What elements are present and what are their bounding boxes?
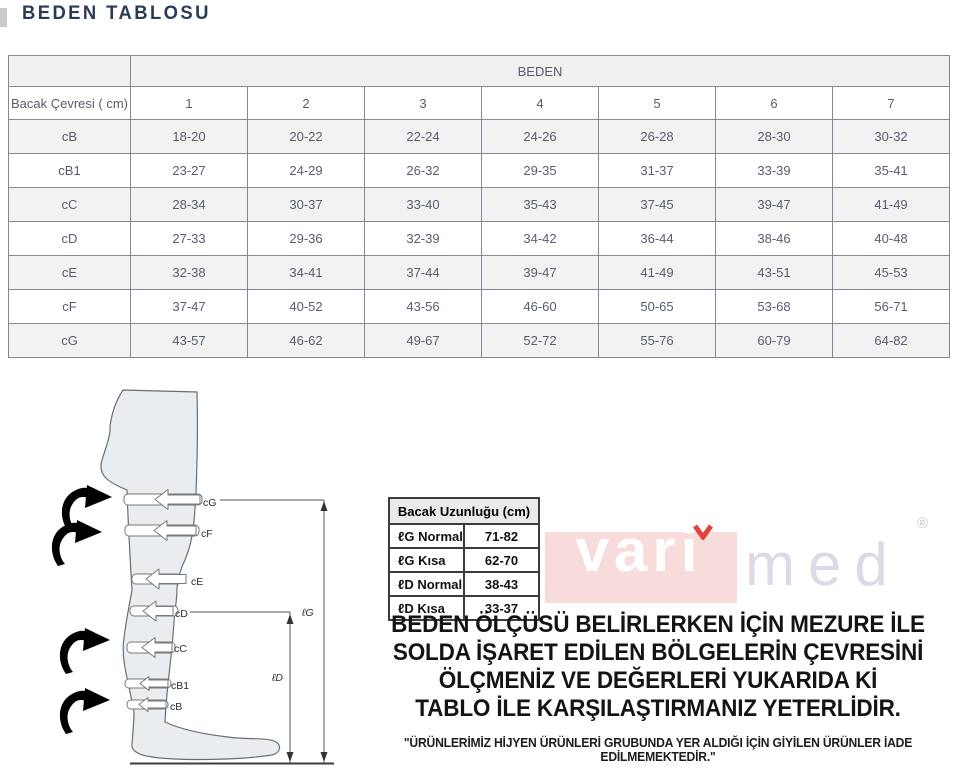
instruction-line: SOLDA İŞARET EDİLEN BÖLGELERİN ÇEVRESİNİ bbox=[364, 639, 953, 667]
size-value-cell: 38-46 bbox=[716, 222, 833, 256]
table-row: cF37-4740-5243-5646-6050-6553-6856-71 bbox=[9, 290, 950, 324]
arrow-down-icon bbox=[287, 752, 294, 762]
size-column-header: 2 bbox=[248, 87, 365, 120]
lg-label: ℓG bbox=[301, 607, 314, 619]
table-row: cE32-3834-4137-4439-4741-4943-5145-53 bbox=[9, 256, 950, 290]
curved-arrow-icon bbox=[60, 628, 110, 674]
size-number-header-row: Bacak Çevresi ( cm) 1234567 bbox=[9, 87, 950, 120]
size-value-cell: 26-28 bbox=[599, 120, 716, 154]
size-value-cell: 40-48 bbox=[833, 222, 950, 256]
size-value-cell: 20-22 bbox=[248, 120, 365, 154]
length-value: 71-82 bbox=[464, 524, 539, 548]
registered-trademark-icon: ® bbox=[917, 515, 928, 532]
size-value-cell: 35-41 bbox=[833, 154, 950, 188]
instruction-line: ÖLÇMENİZ VE DEĞERLERİ YUKARIDA Kİ bbox=[364, 667, 953, 695]
circumference-header: Bacak Çevresi ( cm) bbox=[9, 87, 131, 120]
row-label: cB1 bbox=[9, 154, 131, 188]
length-value: 38-43 bbox=[464, 572, 539, 596]
size-value-cell: 29-35 bbox=[482, 154, 599, 188]
brand-caron-icon bbox=[693, 524, 713, 540]
curved-arrow-icon bbox=[60, 688, 110, 734]
size-value-cell: 45-53 bbox=[833, 256, 950, 290]
length-label: ℓG Normal bbox=[389, 524, 464, 548]
hygiene-return-policy-note: "ÜRÜNLERİMİZ HİJYEN ÜRÜNLERİ GRUBUNDA YE… bbox=[348, 736, 958, 764]
length-value: 62-70 bbox=[464, 548, 539, 572]
size-value-cell: 24-26 bbox=[482, 120, 599, 154]
length-label: ℓG Kısa bbox=[389, 548, 464, 572]
size-value-cell: 36-44 bbox=[599, 222, 716, 256]
page-title: BEDEN TABLOSU bbox=[22, 3, 211, 25]
size-value-cell: 64-82 bbox=[833, 324, 950, 358]
row-label: cB bbox=[9, 120, 131, 154]
table-row: cG43-5746-6249-6752-7255-7660-7964-82 bbox=[9, 324, 950, 358]
table-row: cB123-2724-2926-3229-3531-3733-3935-41 bbox=[9, 154, 950, 188]
table-row: cC28-3430-3733-4035-4337-4539-4741-49 bbox=[9, 188, 950, 222]
size-value-cell: 43-56 bbox=[365, 290, 482, 324]
table-row: cB18-2020-2222-2424-2626-2828-3030-32 bbox=[9, 120, 950, 154]
size-chart-page: BEDEN TABLOSU BEDEN Bacak Çevresi ( cm) … bbox=[0, 0, 958, 779]
size-value-cell: 33-39 bbox=[716, 154, 833, 188]
curved-arrow-icon bbox=[52, 520, 102, 566]
measure-labels: ℓG ℓD bbox=[271, 607, 314, 684]
leg-measurement-diagram: cG cF cE cD cC cB1 cB ℓG ℓD bbox=[40, 382, 350, 779]
title-accent-bar bbox=[0, 8, 7, 27]
size-value-cell: 39-47 bbox=[482, 256, 599, 290]
size-value-cell: 33-40 bbox=[365, 188, 482, 222]
band-label-cG: cG bbox=[203, 497, 216, 509]
size-value-cell: 29-36 bbox=[248, 222, 365, 256]
size-value-cell: 23-27 bbox=[131, 154, 248, 188]
length-table-header: Bacak Uzunluğu (cm) bbox=[389, 498, 539, 524]
size-value-cell: 37-47 bbox=[131, 290, 248, 324]
size-value-cell: 41-49 bbox=[599, 256, 716, 290]
length-row: ℓD Normal38-43 bbox=[389, 572, 539, 596]
size-value-cell: 22-24 bbox=[365, 120, 482, 154]
leg-length-table: Bacak Uzunluğu (cm) ℓG Normal71-82ℓG Kıs… bbox=[388, 497, 540, 621]
size-column-header: 3 bbox=[365, 87, 482, 120]
row-label: cC bbox=[9, 188, 131, 222]
row-label: cD bbox=[9, 222, 131, 256]
ld-label: ℓD bbox=[271, 672, 283, 684]
instruction-line: BEDEN ÖLÇÜSÜ BELİRLERKEN İÇİN MEZURE İLE bbox=[364, 611, 953, 639]
row-label: cF bbox=[9, 290, 131, 324]
size-value-cell: 32-38 bbox=[131, 256, 248, 290]
size-value-cell: 43-57 bbox=[131, 324, 248, 358]
size-group-header: BEDEN bbox=[131, 56, 950, 87]
size-value-cell: 30-37 bbox=[248, 188, 365, 222]
size-value-cell: 40-52 bbox=[248, 290, 365, 324]
size-table: BEDEN Bacak Çevresi ( cm) 1234567 cB18-2… bbox=[8, 55, 950, 358]
length-label: ℓD Normal bbox=[389, 572, 464, 596]
table-row: cD27-3329-3632-3934-4236-4438-4640-48 bbox=[9, 222, 950, 256]
band-label-cF: cF bbox=[201, 528, 213, 540]
measurement-instructions: BEDEN ÖLÇÜSÜ BELİRLERKEN İÇİN MEZURE İLE… bbox=[364, 611, 953, 723]
band-label-cB: cB bbox=[170, 701, 182, 713]
size-value-cell: 43-51 bbox=[716, 256, 833, 290]
size-value-cell: 41-49 bbox=[833, 188, 950, 222]
arrow-up-icon bbox=[321, 501, 328, 511]
corner-cell bbox=[9, 56, 131, 87]
size-value-cell: 56-71 bbox=[833, 290, 950, 324]
size-value-cell: 35-43 bbox=[482, 188, 599, 222]
table-group-header-row: BEDEN bbox=[9, 56, 950, 87]
size-column-header: 5 bbox=[599, 87, 716, 120]
size-value-cell: 52-72 bbox=[482, 324, 599, 358]
size-value-cell: 53-68 bbox=[716, 290, 833, 324]
band-label-cB1: cB1 bbox=[171, 680, 189, 692]
measure-arrowheads bbox=[287, 501, 328, 762]
instruction-line: TABLO İLE KARŞILAŞTIRMANIZ YETERLİDİR. bbox=[364, 695, 953, 723]
size-value-cell: 39-47 bbox=[716, 188, 833, 222]
size-value-cell: 34-42 bbox=[482, 222, 599, 256]
size-column-header: 7 bbox=[833, 87, 950, 120]
size-value-cell: 46-60 bbox=[482, 290, 599, 324]
size-column-header: 1 bbox=[131, 87, 248, 120]
size-value-cell: 50-65 bbox=[599, 290, 716, 324]
row-label: cE bbox=[9, 256, 131, 290]
band-label-cD: cD bbox=[175, 608, 188, 620]
size-value-cell: 37-45 bbox=[599, 188, 716, 222]
size-value-cell: 37-44 bbox=[365, 256, 482, 290]
band-label-cC: cC bbox=[174, 643, 187, 655]
size-value-cell: 28-34 bbox=[131, 188, 248, 222]
size-column-header: 6 bbox=[716, 87, 833, 120]
size-value-cell: 27-33 bbox=[131, 222, 248, 256]
size-column-header: 4 bbox=[482, 87, 599, 120]
length-table-header-row: Bacak Uzunluğu (cm) bbox=[389, 498, 539, 524]
arrow-up-icon bbox=[287, 614, 294, 624]
arrow-down-icon bbox=[321, 752, 328, 762]
pointer-arrows bbox=[52, 485, 112, 734]
band-label-cE: cE bbox=[191, 576, 203, 588]
size-value-cell: 49-67 bbox=[365, 324, 482, 358]
length-row: ℓG Normal71-82 bbox=[389, 524, 539, 548]
brand-name-part2: med bbox=[745, 532, 901, 603]
size-value-cell: 30-32 bbox=[833, 120, 950, 154]
size-value-cell: 31-37 bbox=[599, 154, 716, 188]
size-value-cell: 18-20 bbox=[131, 120, 248, 154]
brand-watermark: vari med ® bbox=[543, 518, 943, 610]
size-value-cell: 34-41 bbox=[248, 256, 365, 290]
size-value-cell: 55-76 bbox=[599, 324, 716, 358]
length-row: ℓG Kısa62-70 bbox=[389, 548, 539, 572]
size-value-cell: 28-30 bbox=[716, 120, 833, 154]
size-value-cell: 46-62 bbox=[248, 324, 365, 358]
size-value-cell: 24-29 bbox=[248, 154, 365, 188]
size-value-cell: 26-32 bbox=[365, 154, 482, 188]
row-label: cG bbox=[9, 324, 131, 358]
size-value-cell: 32-39 bbox=[365, 222, 482, 256]
size-value-cell: 60-79 bbox=[716, 324, 833, 358]
